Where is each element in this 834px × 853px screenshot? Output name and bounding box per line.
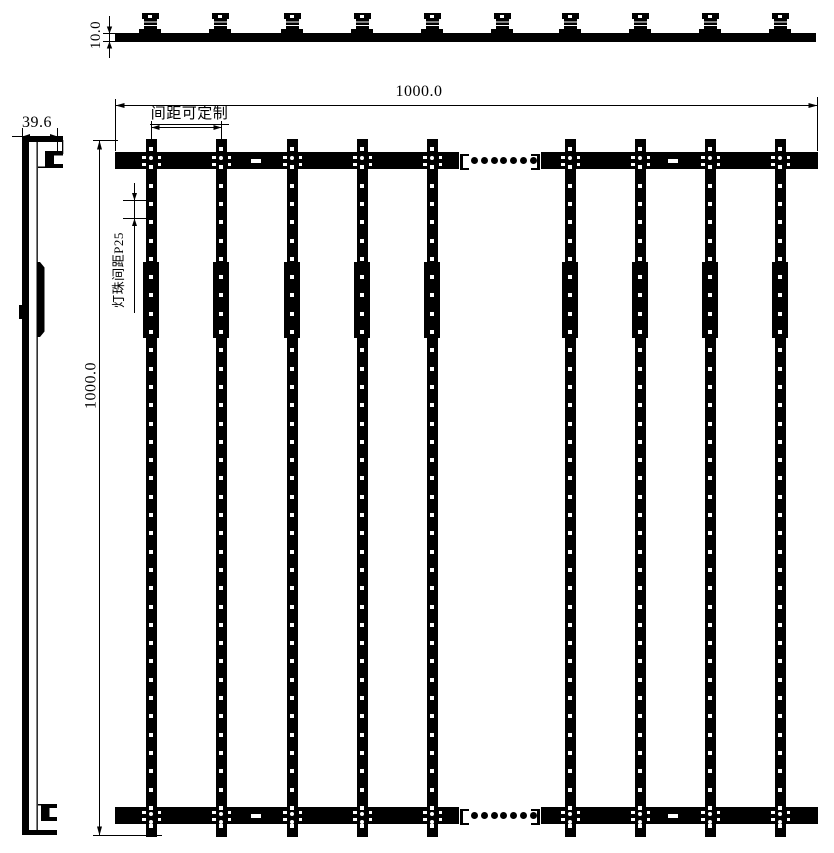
led-hole [778,202,782,206]
led-hole [290,696,294,700]
strip-connector-bulge [213,262,229,338]
led-hole [149,623,153,627]
led-hole [290,733,294,737]
led-hole [149,641,153,645]
led-hole [778,403,782,407]
led-hole [149,696,153,700]
rivet-hole [568,165,572,169]
led-hole [149,678,153,682]
led-hole [149,714,153,718]
led-hole [708,403,712,407]
led-hole [360,495,364,499]
led-strip [775,139,786,837]
led-hole [290,202,294,206]
led-hole [360,531,364,535]
rivet-hole [219,820,223,824]
rail-mount-hole [299,818,303,822]
led-hole [708,824,712,828]
led-hole [638,751,642,755]
led-hole [360,678,364,682]
rail-mount-hole [787,163,791,167]
rail-mount-hole [717,163,721,167]
led-hole [360,696,364,700]
led-hole [219,586,223,590]
rail-mount-hole [647,163,651,167]
led-hole [290,440,294,444]
led-hole [430,239,434,243]
led-hole [360,714,364,718]
led-hole [430,202,434,206]
led-hole [149,422,153,426]
rail-mount-hole [228,156,232,160]
rail-mount-hole [439,163,443,167]
led-hole [219,696,223,700]
led-hole [778,605,782,609]
rail-mount-hole [228,818,232,822]
led-hole [219,476,223,480]
led-hole [360,403,364,407]
led-hole [638,641,642,645]
clip-base [351,29,373,33]
led-hole [638,476,642,480]
led-hole [708,476,712,480]
led-hole [149,257,153,261]
led-hole [430,293,434,297]
led-hole [568,531,572,535]
led-hole [778,550,782,554]
led-hole [290,495,294,499]
ellipsis-dot [481,812,488,819]
led-hole [778,293,782,297]
led-hole [638,531,642,535]
led-hole [638,275,642,279]
led-hole [360,824,364,828]
led-hole [708,202,712,206]
led-hole [708,312,712,316]
rivet-hole [568,812,572,816]
led-hole [360,586,364,590]
mount-clip [491,13,513,33]
rivet-hole [568,820,572,824]
led-hole [219,751,223,755]
led-hole [568,312,572,316]
led-hole [149,513,153,517]
led-hole [778,440,782,444]
led-hole [708,422,712,426]
led-hole [290,714,294,718]
label-strip-spacing: 间距可定制 [150,105,229,125]
led-hole [708,788,712,792]
led-hole [360,330,364,334]
led-hole [430,550,434,554]
led-hole [638,696,642,700]
led-hole [638,220,642,224]
led-hole [568,623,572,627]
led-hole [778,458,782,462]
led-hole [778,513,782,517]
rail-mount-hole [369,163,373,167]
led-hole [708,751,712,755]
led-hole [219,605,223,609]
led-hole [638,623,642,627]
led-hole [778,678,782,682]
led-hole [149,806,153,810]
clip-cap-hole [148,15,152,18]
led-hole [708,586,712,590]
rail-mount-hole [787,818,791,822]
led-hole [219,513,223,517]
led-hole [149,348,153,352]
led-hole [290,788,294,792]
led-hole [568,293,572,297]
led-hole [638,824,642,828]
led-hole [149,293,153,297]
led-hole [149,733,153,737]
led-hole [430,422,434,426]
rail-slot [668,159,678,163]
led-hole [360,293,364,297]
clip-neck [286,19,299,29]
rail-mount-hole [158,156,162,160]
led-hole [638,422,642,426]
rivet-hole [219,812,223,816]
led-hole [568,586,572,590]
led-hole [778,714,782,718]
strip-connector-bulge [284,262,300,338]
led-hole [638,367,642,371]
led-hole [219,531,223,535]
led-hole [638,788,642,792]
rail-slot [251,159,261,163]
led-hole [638,806,642,810]
bracket-left-icon [460,809,469,825]
led-hole [149,458,153,462]
rivet-hole [149,156,153,160]
led-hole [708,769,712,773]
dim-side-width: 39.6 [14,114,60,131]
rail-mount-hole [439,156,443,160]
led-hole [568,403,572,407]
led-hole [149,495,153,499]
led-hole [290,257,294,261]
strip-connector-bulge [143,262,159,338]
led-hole [568,788,572,792]
clip-cap-hole [360,15,364,18]
led-hole [568,202,572,206]
led-hole [708,605,712,609]
led-hole [430,769,434,773]
led-hole [568,751,572,755]
mount-clip [559,13,581,33]
led-hole [360,458,364,462]
rail-slot [668,814,678,818]
ellipsis-dot [500,812,507,819]
rail-mount-hole [299,156,303,160]
led-hole [568,824,572,828]
led-hole [149,202,153,206]
led-hole [638,714,642,718]
led-hole [430,696,434,700]
led-strip [705,139,716,837]
led-hole [149,476,153,480]
led-hole [360,751,364,755]
rivet-hole [708,156,712,160]
led-hole [430,824,434,828]
rail-mount-hole [577,818,581,822]
led-hole [778,824,782,828]
led-hole [708,806,712,810]
led-hole [638,312,642,316]
led-hole [778,769,782,773]
led-hole [430,678,434,682]
led-hole [290,239,294,243]
rail-mount-hole [299,163,303,167]
led-strip [357,139,368,837]
dim-top-thickness: 10.0 [89,17,103,53]
rivet-hole [219,156,223,160]
led-hole [638,769,642,773]
led-hole [430,458,434,462]
led-hole [568,147,572,151]
led-hole [149,367,153,371]
led-hole [430,788,434,792]
ellipsis-dot [491,157,498,164]
clip-cap-hole [708,15,712,18]
led-hole [219,422,223,426]
led-hole [778,422,782,426]
led-hole [568,184,572,188]
led-hole [149,605,153,609]
led-strip [565,139,576,837]
led-hole [219,440,223,444]
clip-cap-hole [568,15,572,18]
led-hole [430,586,434,590]
led-hole [360,147,364,151]
led-hole [219,623,223,627]
led-hole [149,440,153,444]
led-hole [219,641,223,645]
led-hole [360,568,364,572]
ellipsis-dot [530,812,537,819]
led-hole [290,476,294,480]
led-hole [219,788,223,792]
led-hole [778,751,782,755]
led-hole [638,440,642,444]
led-hole [149,531,153,535]
clip-base [281,29,303,33]
led-hole [290,385,294,389]
led-hole [219,147,223,151]
rivet-hole [290,165,294,169]
led-hole [219,733,223,737]
led-hole [430,531,434,535]
led-hole [708,220,712,224]
ellipsis-dot [481,157,488,164]
led-hole [778,330,782,334]
led-hole [638,385,642,389]
led-hole [568,513,572,517]
led-hole [430,147,434,151]
led-hole [290,605,294,609]
led-hole [149,385,153,389]
clip-cap-hole [638,15,642,18]
led-hole [290,184,294,188]
led-hole [430,348,434,352]
clip-cap-hole [290,15,294,18]
led-hole [430,184,434,188]
clip-cap-hole [778,15,782,18]
led-hole [708,440,712,444]
led-hole [290,403,294,407]
rivet-hole [430,165,434,169]
led-hole [708,623,712,627]
rail-mount-hole [158,818,162,822]
led-hole [219,769,223,773]
led-hole [778,659,782,663]
led-hole [568,659,572,663]
mount-clip [629,13,651,33]
led-hole [290,348,294,352]
rivet-hole [708,165,712,169]
led-hole [290,806,294,810]
ellipsis-dot [500,157,507,164]
led-hole [360,367,364,371]
led-hole [778,239,782,243]
led-hole [219,824,223,828]
led-hole [568,348,572,352]
rail-slot [251,814,261,818]
clip-neck [496,19,509,29]
led-hole [638,733,642,737]
rail-mount-hole [299,811,303,815]
led-hole [360,275,364,279]
led-hole [638,513,642,517]
led-hole [360,605,364,609]
rail-mount-hole [158,811,162,815]
led-hole [219,293,223,297]
rivet-hole [430,820,434,824]
rail-mount-hole [717,818,721,822]
dim-front-width: 1000.0 [388,83,450,100]
led-hole [638,147,642,151]
rail-mount-hole [228,811,232,815]
rivet-hole [360,820,364,824]
clip-neck [214,19,227,29]
rivet-hole [638,165,642,169]
strip-connector-bulge [424,262,440,338]
rail-mount-hole [158,163,162,167]
technical-drawing-canvas: 10.0 39.6 1000.0 1000.0 间距可定制 灯珠间距P25 [0,0,834,853]
rail-mount-hole [647,818,651,822]
led-hole [290,550,294,554]
led-hole [219,202,223,206]
ellipsis-dot [520,157,527,164]
strip-connector-bulge [632,262,648,338]
led-hole [778,220,782,224]
led-hole [568,733,572,737]
rail-mount-hole [647,156,651,160]
led-hole [638,659,642,663]
led-hole [638,403,642,407]
led-hole [219,659,223,663]
led-hole [708,733,712,737]
led-hole [360,422,364,426]
led-hole [360,385,364,389]
rail-continuation-gap [459,807,541,824]
led-hole [430,806,434,810]
led-hole [638,458,642,462]
led-hole [568,769,572,773]
led-hole [430,257,434,261]
ellipsis-dot [510,157,517,164]
led-hole [149,403,153,407]
clip-base [139,29,161,33]
led-hole [638,348,642,352]
led-hole [568,605,572,609]
led-hole [708,184,712,188]
led-hole [708,550,712,554]
led-hole [290,769,294,773]
led-hole [778,495,782,499]
led-hole [568,367,572,371]
led-hole [290,641,294,645]
led-hole [568,458,572,462]
rivet-hole [360,156,364,160]
led-hole [149,184,153,188]
led-strip [216,139,227,837]
rail-mount-hole [577,163,581,167]
led-hole [360,202,364,206]
led-hole [219,550,223,554]
rivet-hole [778,820,782,824]
led-hole [708,330,712,334]
mount-clip [769,13,791,33]
led-hole [430,330,434,334]
top-view-bar [115,33,816,42]
led-hole [568,678,572,682]
led-hole [290,293,294,297]
led-hole [290,659,294,663]
led-hole [568,550,572,554]
rivet-hole [149,812,153,816]
led-hole [360,184,364,188]
led-hole [430,312,434,316]
led-hole [360,659,364,663]
ellipsis-dot [530,157,537,164]
led-hole [708,513,712,517]
led-hole [778,788,782,792]
rivet-hole [149,820,153,824]
strip-connector-bulge [702,262,718,338]
led-hole [568,806,572,810]
led-hole [149,147,153,151]
rivet-hole [778,165,782,169]
led-hole [430,476,434,480]
rivet-hole [638,820,642,824]
led-hole [708,257,712,261]
led-hole [708,293,712,297]
led-hole [219,275,223,279]
mount-clip [281,13,303,33]
rivet-hole [290,156,294,160]
led-hole [708,348,712,352]
rail-mount-hole [647,811,651,815]
led-hole [778,696,782,700]
led-hole [568,495,572,499]
rivet-hole [149,165,153,169]
led-hole [708,659,712,663]
led-hole [430,440,434,444]
